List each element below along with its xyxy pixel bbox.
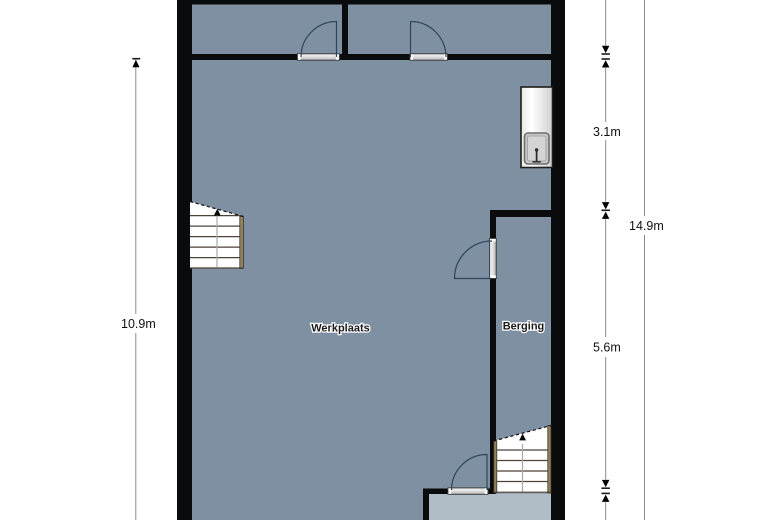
svg-text:Werkplaats: Werkplaats: [311, 323, 370, 335]
svg-text:10.9m: 10.9m: [121, 317, 156, 331]
svg-text:3.1m: 3.1m: [593, 125, 621, 139]
svg-text:5.6m: 5.6m: [593, 341, 621, 355]
svg-text:14.9m: 14.9m: [629, 219, 664, 233]
svg-text:Berging: Berging: [503, 321, 545, 333]
